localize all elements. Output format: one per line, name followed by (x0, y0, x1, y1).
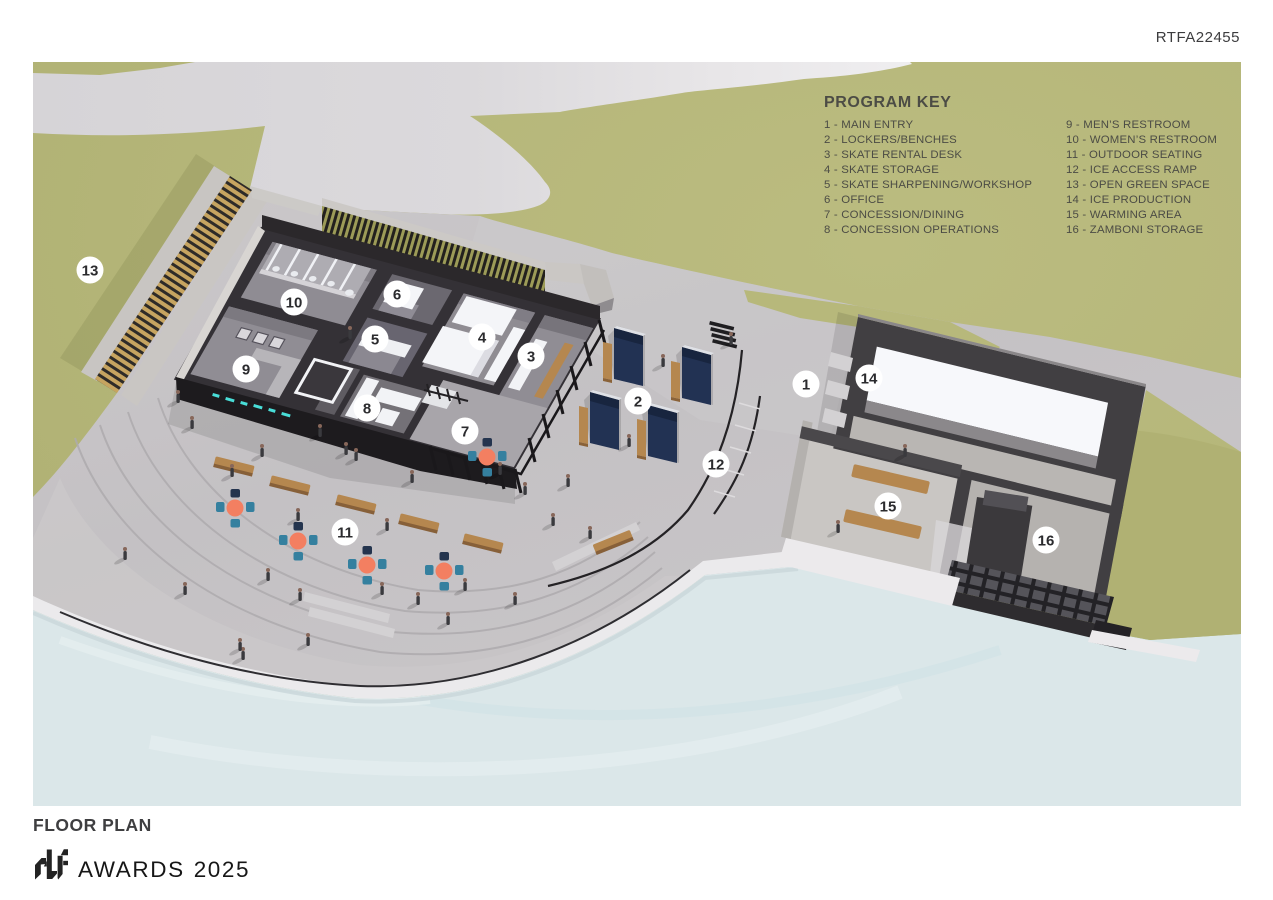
svg-text:16 - ZAMBONI STORAGE: 16 - ZAMBONI STORAGE (1066, 224, 1204, 236)
svg-text:4: 4 (478, 330, 487, 347)
svg-text:1 - MAIN ENTRY: 1 - MAIN ENTRY (824, 119, 913, 131)
svg-text:1: 1 (802, 377, 810, 394)
svg-text:5 - SKATE SHARPENING/WORKSHOP: 5 - SKATE SHARPENING/WORKSHOP (824, 179, 1032, 191)
svg-text:8 - CONCESSION OPERATIONS: 8 - CONCESSION OPERATIONS (824, 224, 999, 236)
svg-text:12: 12 (708, 457, 725, 474)
svg-text:12 - ICE ACCESS RAMP: 12 - ICE ACCESS RAMP (1066, 164, 1197, 176)
svg-text:4 - SKATE STORAGE: 4 - SKATE STORAGE (824, 164, 939, 176)
svg-text:13: 13 (82, 263, 99, 280)
svg-text:2: 2 (634, 394, 642, 411)
svg-text:5: 5 (371, 332, 379, 349)
svg-text:11: 11 (337, 525, 353, 542)
svg-text:2 - LOCKERS/BENCHES: 2 - LOCKERS/BENCHES (824, 134, 957, 146)
svg-text:11 - OUTDOOR SEATING: 11 - OUTDOOR SEATING (1066, 149, 1202, 161)
svg-text:RTFA22455: RTFA22455 (1156, 29, 1240, 46)
svg-text:7: 7 (461, 424, 469, 441)
svg-text:3 - SKATE RENTAL DESK: 3 - SKATE RENTAL DESK (824, 149, 962, 161)
svg-text:7 - CONCESSION/DINING: 7 - CONCESSION/DINING (824, 209, 964, 221)
svg-text:PROGRAM KEY: PROGRAM KEY (824, 94, 952, 111)
svg-text:9: 9 (242, 362, 250, 379)
svg-text:15: 15 (880, 499, 897, 516)
svg-text:FLOOR PLAN: FLOOR PLAN (33, 815, 152, 835)
svg-text:14: 14 (861, 371, 878, 388)
svg-text:13 - OPEN GREEN SPACE: 13 - OPEN GREEN SPACE (1066, 179, 1210, 191)
svg-text:AWARDS2025: AWARDS2025 (78, 857, 250, 882)
svg-text:16: 16 (1038, 533, 1055, 550)
svg-text:15 - WARMING AREA: 15 - WARMING AREA (1066, 209, 1182, 221)
svg-text:8: 8 (363, 401, 371, 418)
svg-text:6 - OFFICE: 6 - OFFICE (824, 194, 884, 206)
svg-text:6: 6 (393, 287, 401, 304)
svg-text:9 - MEN’S RESTROOM: 9 - MEN’S RESTROOM (1066, 119, 1190, 131)
svg-text:10 - WOMEN’S RESTROOM: 10 - WOMEN’S RESTROOM (1066, 134, 1217, 146)
svg-text:10: 10 (286, 295, 303, 312)
svg-text:14 - ICE PRODUCTION: 14 - ICE PRODUCTION (1066, 194, 1191, 206)
svg-text:3: 3 (527, 349, 535, 366)
